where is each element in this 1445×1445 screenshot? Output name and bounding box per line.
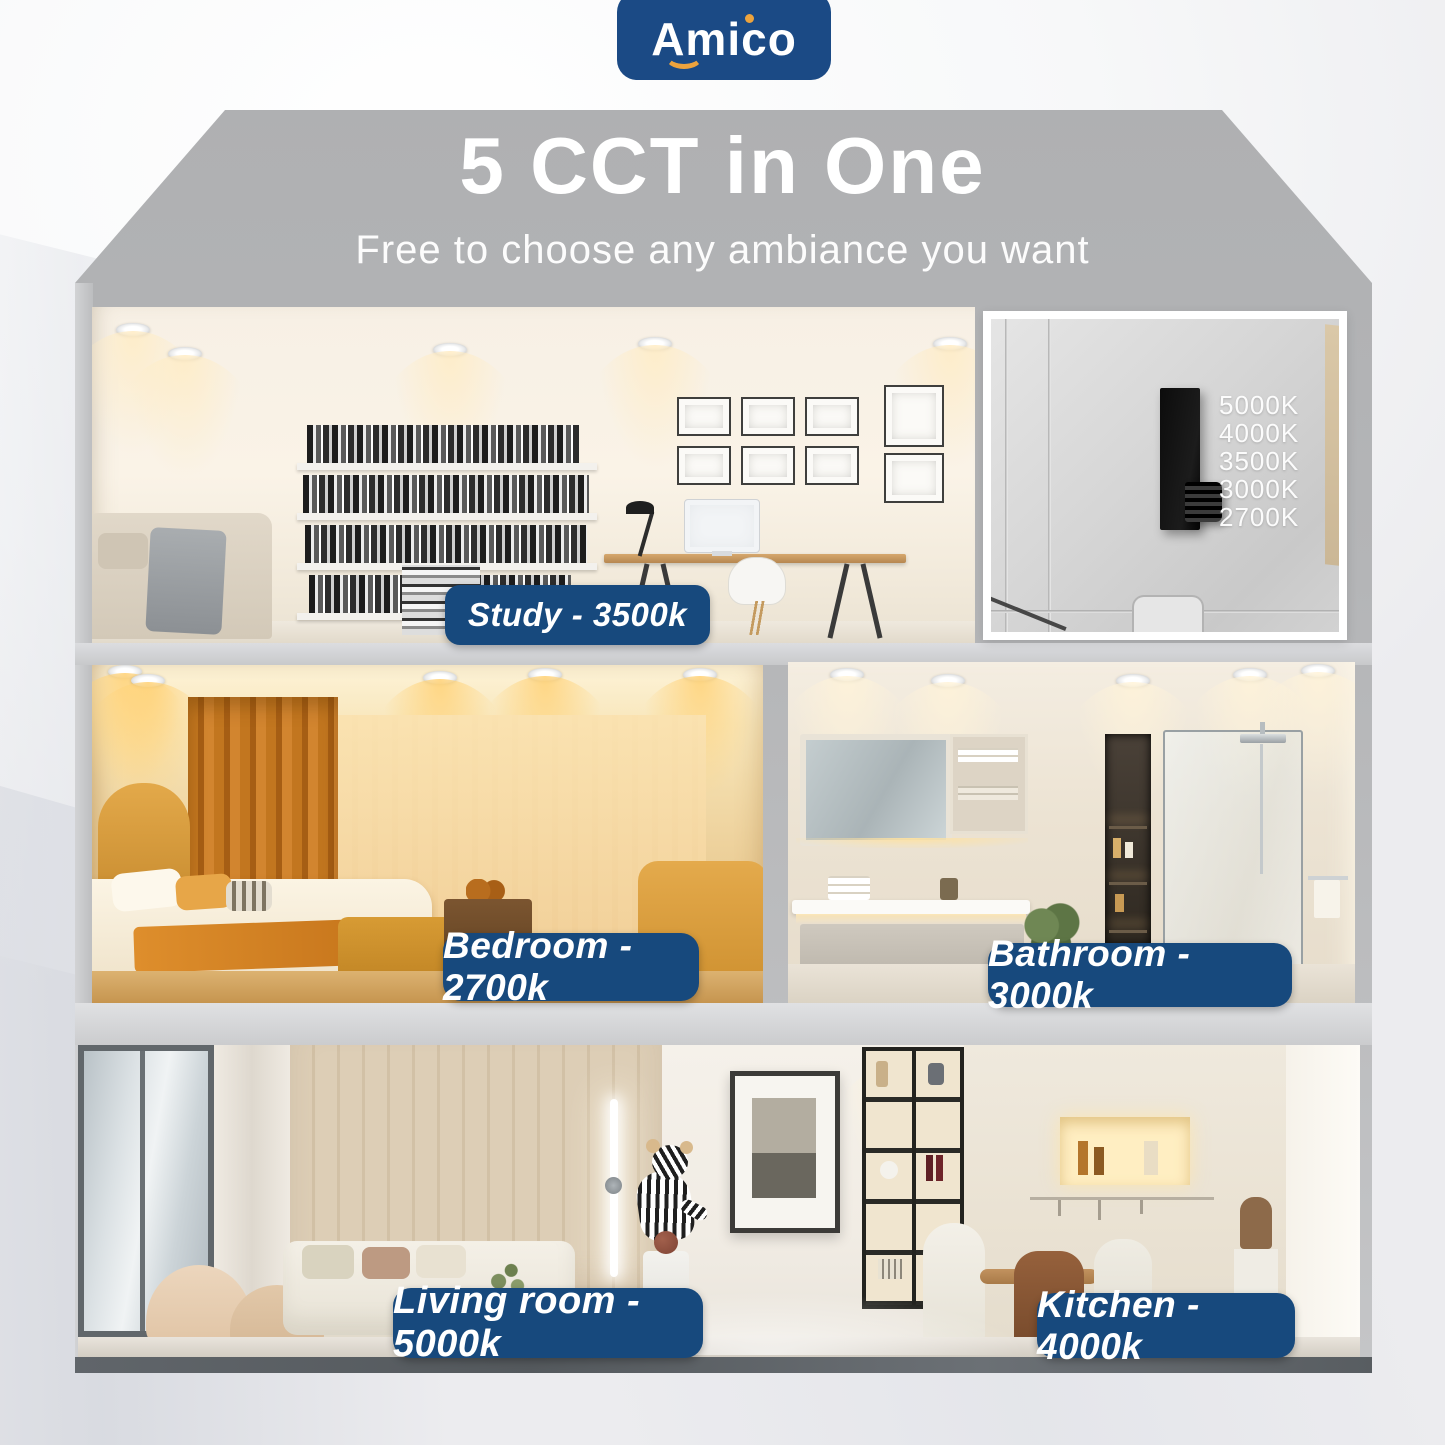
sofa-cushion <box>416 1245 466 1278</box>
picture-frame <box>805 446 859 485</box>
cct-option: 5000K <box>1219 391 1299 419</box>
recessed-light <box>830 668 864 681</box>
recessed-light <box>528 668 562 681</box>
picture-frame <box>805 397 859 436</box>
cct-option: 3500K <box>1219 447 1299 475</box>
book-stack <box>878 1259 902 1279</box>
picture-frame <box>677 446 731 485</box>
shelf-board <box>297 513 597 520</box>
pillow <box>110 867 184 912</box>
niche-shelf <box>1109 882 1147 885</box>
recessed-light <box>933 337 967 350</box>
page-subtitle: Free to choose any ambiance you want <box>0 228 1445 273</box>
desk-trestle-leg <box>828 563 882 637</box>
roof-heading: 5 CCT in One Free to choose any ambiance… <box>0 126 1445 273</box>
wall-edge <box>1325 324 1339 565</box>
junction-box-photo: 5000K 4000K 3500K 3000K 2700K <box>991 319 1339 632</box>
pitcher <box>1144 1141 1158 1175</box>
sculpture <box>1240 1197 1272 1249</box>
rain-shower-head <box>1240 734 1286 743</box>
counter-led-glow <box>796 914 1026 924</box>
rail-hook <box>1140 1200 1143 1214</box>
desk-chair-legs <box>736 601 776 635</box>
shower-pipe <box>1260 744 1263 874</box>
recessed-light <box>683 668 717 681</box>
desktop-computer <box>684 499 760 553</box>
recessed-light <box>638 337 672 350</box>
page-title: 5 CCT in One <box>0 126 1445 206</box>
cable <box>991 595 1067 631</box>
cct-option-list: 5000K 4000K 3500K 3000K 2700K <box>1219 391 1299 531</box>
logo-i-dot <box>745 14 754 23</box>
recessed-light <box>1233 668 1267 681</box>
vanity-counter <box>792 900 1030 914</box>
wine-bottle <box>936 1155 943 1181</box>
decor-sphere <box>880 1161 898 1179</box>
sofa-cushion <box>98 533 148 569</box>
pillow <box>175 873 233 911</box>
bottle <box>1115 894 1124 912</box>
recessed-light <box>116 323 150 336</box>
sofa-cushion <box>302 1245 354 1279</box>
badge-study: Study - 3500k <box>445 585 710 645</box>
rail-hook <box>1098 1200 1101 1220</box>
product-infographic: 5 CCT in One Free to choose any ambiance… <box>0 0 1445 1445</box>
badge-bedroom: Bedroom - 2700k <box>443 933 699 1001</box>
cct-option: 2700K <box>1219 503 1299 531</box>
recessed-light <box>433 343 467 356</box>
soap-bottle <box>940 878 958 900</box>
desk-lamp-head <box>626 501 654 514</box>
amico-logo: Amico <box>617 0 831 80</box>
decanter-set <box>466 879 506 899</box>
desk-chair <box>728 557 786 605</box>
recessed-light <box>131 674 165 687</box>
shower-niche <box>1105 734 1151 946</box>
badge-bathroom: Bathroom - 3000k <box>988 943 1292 1007</box>
cct-switch-inset: 5000K 4000K 3500K 3000K 2700K <box>983 311 1347 640</box>
books-row <box>303 475 589 513</box>
recessed-light <box>931 674 965 687</box>
throw-blanket <box>145 527 226 635</box>
hanging-towel <box>1314 880 1340 918</box>
cct-option: 4000K <box>1219 419 1299 447</box>
picture-frame <box>741 446 795 485</box>
figurine <box>876 1061 888 1087</box>
sofa-cushion <box>362 1247 410 1279</box>
books-row <box>307 425 579 463</box>
cabinet-underglow <box>796 838 1028 848</box>
vase <box>654 1231 678 1254</box>
mirror-cabinet <box>800 734 952 846</box>
recessed-light <box>1116 674 1150 687</box>
recessed-light <box>1301 664 1335 677</box>
niche-shelf <box>1109 826 1147 829</box>
bottle <box>1125 842 1133 858</box>
badge-kitchen: Kitchen - 4000k <box>1037 1293 1295 1358</box>
picture-frame <box>677 397 731 436</box>
books-row <box>305 525 587 563</box>
recessed-light <box>168 347 202 360</box>
house-cutaway: 5 CCT in One Free to choose any ambiance… <box>0 0 1445 1445</box>
computer-stand <box>712 551 732 556</box>
badge-living-room: Living room - 5000k <box>393 1288 703 1358</box>
panel-seam <box>1005 319 1008 632</box>
towels <box>958 786 1018 800</box>
rail-hook <box>1058 1200 1061 1216</box>
shelf-board <box>297 463 597 470</box>
logo-smile-accent <box>665 44 703 69</box>
door-frame-divider <box>140 1051 145 1331</box>
bottle <box>1094 1147 1104 1175</box>
figurine <box>928 1063 944 1085</box>
cct-option: 3000K <box>1219 475 1299 503</box>
pillow <box>226 881 272 911</box>
artwork-print <box>752 1098 816 1198</box>
picture-frame <box>884 453 944 503</box>
bed-throw <box>133 919 366 973</box>
gallery-frames <box>677 397 859 485</box>
towel-stack <box>828 876 870 900</box>
panel-seam <box>1048 319 1051 632</box>
wine-bottle <box>926 1155 933 1181</box>
cct-switch-knob <box>1185 482 1222 522</box>
cable-clamp <box>1132 595 1204 632</box>
picture-frame <box>741 397 795 436</box>
bottle <box>1078 1141 1088 1175</box>
framed-artwork <box>730 1071 840 1233</box>
bottle <box>1113 838 1121 858</box>
recessed-light <box>423 671 457 684</box>
wall-light-knob <box>605 1177 622 1194</box>
picture-frame <box>884 385 944 447</box>
bright-end-wall <box>1286 1045 1360 1357</box>
towels <box>958 748 1018 762</box>
